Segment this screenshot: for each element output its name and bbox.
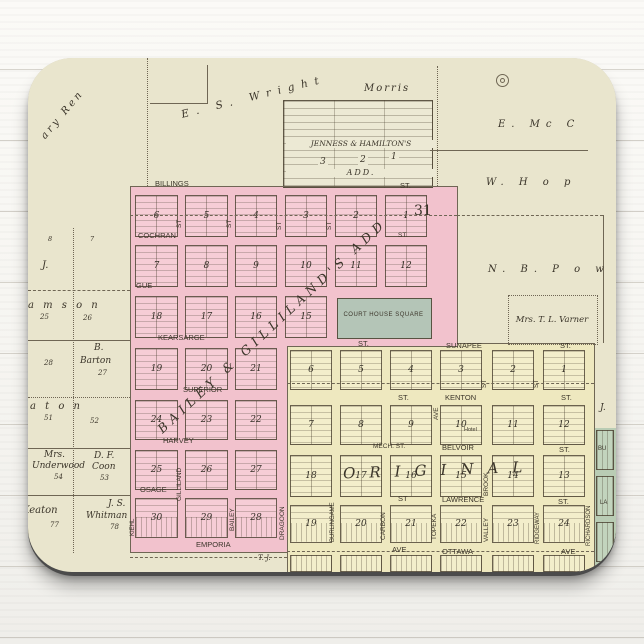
parcel-number: 52 bbox=[90, 418, 99, 425]
block-number: 12 bbox=[386, 246, 426, 286]
survey-line bbox=[28, 290, 130, 291]
block-number: 30 bbox=[136, 499, 177, 537]
plat-block-18: 18 bbox=[135, 296, 178, 338]
street-label-mech-st: MECH. ST. bbox=[373, 444, 405, 451]
owner-label-whitman: Whitman bbox=[86, 512, 127, 521]
plat-block bbox=[290, 555, 332, 572]
survey-line bbox=[457, 186, 458, 344]
owner-label-w-hop: W. H o p bbox=[486, 178, 576, 188]
survey-line bbox=[28, 495, 130, 496]
block-number: 24 bbox=[544, 506, 584, 542]
street-label-kenton: KENTON bbox=[445, 394, 476, 402]
block-number: 26 bbox=[186, 451, 227, 489]
plat-block-22: 22 bbox=[235, 400, 277, 440]
plat-block bbox=[440, 555, 482, 572]
street-label-st: ST bbox=[227, 220, 234, 228]
block-number: 21 bbox=[391, 506, 431, 542]
owner-label-underwood: Underwood bbox=[32, 462, 85, 471]
plat-block-10: 10 bbox=[440, 405, 482, 445]
street-label-carbon: CARBON bbox=[381, 512, 388, 540]
owner-label-coon: Coon bbox=[92, 463, 116, 472]
street-label-gilliland: GILLILAND bbox=[177, 468, 184, 501]
street-label-ave: AVE bbox=[434, 407, 441, 420]
owner-label-t-j: T. J. bbox=[258, 555, 271, 562]
plat-block-5: 5 bbox=[340, 350, 382, 390]
plat-block bbox=[390, 555, 432, 572]
block-number: 23 bbox=[493, 506, 533, 542]
parcel-number: 7 bbox=[90, 236, 94, 243]
plat-map: 6543217891011121817161519202124232225262… bbox=[28, 58, 616, 572]
parcel-number: 51 bbox=[44, 415, 53, 422]
plat-block bbox=[543, 555, 585, 572]
jenness-hamilton-add-label: ADD. bbox=[286, 169, 436, 177]
street-label-partial: BU bbox=[598, 446, 606, 452]
plat-block-23: 23 bbox=[492, 505, 534, 543]
block-number: 5 bbox=[186, 196, 227, 236]
survey-line bbox=[130, 215, 457, 216]
plat-block-20: 20 bbox=[340, 505, 382, 543]
owner-label-e-mc-c: E. Mc C bbox=[498, 120, 580, 130]
plat-block-24: 24 bbox=[543, 505, 585, 543]
block-number: 27 bbox=[236, 451, 276, 489]
parcel-number: 53 bbox=[100, 475, 109, 482]
survey-line bbox=[287, 383, 594, 384]
jenness-hamilton-addition-label: JENNESS & HAMILTON'S bbox=[286, 140, 436, 148]
owner-label-mrs-underwood: Mrs. bbox=[44, 451, 65, 460]
block-number: 18 bbox=[291, 456, 331, 496]
plat-block bbox=[492, 555, 534, 572]
plat-block-30: 30 bbox=[135, 498, 178, 538]
block-number: 22 bbox=[236, 401, 276, 439]
owner-label-keaton: Keaton bbox=[28, 506, 58, 516]
street-label-st: ST bbox=[534, 380, 541, 388]
plat-block-29: 29 bbox=[185, 498, 228, 538]
block-number: 8 bbox=[341, 406, 381, 444]
parcel-number: 28 bbox=[44, 360, 53, 367]
owner-label-j-s-whitman: J. S. bbox=[108, 500, 125, 509]
plat-block-8: 8 bbox=[340, 405, 382, 445]
survey-line bbox=[73, 228, 74, 553]
street-label-richardson: RICHARDSON bbox=[586, 506, 592, 546]
block-number: 7 bbox=[136, 246, 177, 286]
block-number: 19 bbox=[291, 506, 331, 542]
plat-block-18: 18 bbox=[290, 455, 332, 497]
owner-label-amson: a m s o n bbox=[28, 301, 101, 311]
owner-label-morris: Morris bbox=[364, 84, 410, 94]
plat-block-9: 9 bbox=[235, 245, 277, 287]
product-photo-scene: 6543217891011121817161519202124232225262… bbox=[0, 0, 644, 644]
street-label-billings: BILLINGS bbox=[155, 180, 189, 188]
block-number: 9 bbox=[236, 246, 276, 286]
owner-label-n-b-pow: N. B. P o w bbox=[488, 265, 610, 275]
section-number-31: 31 bbox=[414, 204, 432, 218]
parcel-number: 27 bbox=[98, 370, 107, 377]
survey-line bbox=[28, 340, 130, 341]
block-number: 13 bbox=[544, 456, 584, 496]
plat-block-19: 19 bbox=[290, 505, 332, 543]
plat-block-1: 1 bbox=[543, 350, 585, 390]
block-number: 20 bbox=[341, 506, 381, 542]
block-number: 17 bbox=[186, 297, 227, 337]
survey-line bbox=[430, 150, 588, 151]
plat-block-3: 3 bbox=[285, 195, 327, 237]
survey-line bbox=[603, 215, 604, 343]
parcel-number: 25 bbox=[40, 314, 49, 321]
block-number: 4 bbox=[236, 196, 276, 236]
block-number: 19 bbox=[136, 349, 177, 389]
plat-block-22: 22 bbox=[440, 505, 482, 543]
plat-block-9: 9 bbox=[390, 405, 432, 445]
plat-block-17: 17 bbox=[185, 296, 228, 338]
survey-line bbox=[287, 346, 458, 347]
block-number: 7 bbox=[291, 406, 331, 444]
plat-block-19: 19 bbox=[135, 348, 178, 390]
parcel-number: 8 bbox=[48, 236, 52, 243]
block-number: 12 bbox=[544, 406, 584, 444]
owner-label-b-barton: B. bbox=[94, 344, 103, 353]
owner-label-barton: Barton bbox=[80, 357, 111, 366]
street-label-st: ST. bbox=[558, 498, 569, 506]
survey-line bbox=[130, 186, 131, 553]
street-label-st: ST. bbox=[398, 394, 409, 402]
plat-block-7: 7 bbox=[290, 405, 332, 445]
street-label-topeka: TOPEKA bbox=[432, 514, 439, 540]
survey-line bbox=[130, 552, 287, 553]
survey-line bbox=[594, 343, 595, 428]
owner-label-j-right: J. bbox=[600, 404, 606, 413]
owner-label-d-f-coon: D. F. bbox=[94, 452, 114, 461]
street-label-st: ST bbox=[277, 222, 284, 230]
survey-line bbox=[594, 428, 595, 572]
plat-block bbox=[340, 555, 382, 572]
street-label-st: ST bbox=[177, 220, 184, 228]
survey-line bbox=[287, 346, 288, 572]
street-label-st: ST. bbox=[561, 394, 572, 402]
plat-block-21: 21 bbox=[390, 505, 432, 543]
owner-label-aton: a t o n bbox=[30, 402, 83, 412]
jenness-block-number: 3 bbox=[318, 158, 328, 167]
courthouse-square-label: COURT HOUSE SQUARE bbox=[337, 312, 430, 318]
street-label-bailey: BAILEY bbox=[230, 508, 237, 531]
street-label-gue: GUE bbox=[136, 282, 152, 290]
street-label-cochran: COCHRAN bbox=[138, 232, 176, 240]
street-label-st: ST. bbox=[560, 342, 571, 350]
street-label-burlingame: BURLINGAME bbox=[330, 502, 336, 542]
block-number: 10 bbox=[441, 406, 481, 444]
street-label-belvoir: BELVOIR bbox=[442, 444, 474, 452]
block-number: 8 bbox=[186, 246, 227, 286]
plat-block-12: 12 bbox=[385, 245, 427, 287]
plat-block-6: 6 bbox=[290, 350, 332, 390]
jenness-block-number: 2 bbox=[358, 156, 368, 165]
street-label-ottawa: OTTAWA bbox=[442, 548, 473, 556]
parcel-number: 78 bbox=[110, 524, 119, 531]
stamp-icon bbox=[496, 74, 509, 87]
block-number: 28 bbox=[236, 499, 276, 537]
plat-block-2: 2 bbox=[492, 350, 534, 390]
street-label-st: ST. bbox=[398, 233, 407, 240]
street-label-osage: OSAGE bbox=[140, 486, 167, 494]
plat-block-5: 5 bbox=[185, 195, 228, 237]
plat-block-4: 4 bbox=[390, 350, 432, 390]
block-number: 25 bbox=[136, 451, 177, 489]
street-label-st: ST bbox=[327, 222, 334, 230]
plat-block-26: 26 bbox=[185, 450, 228, 490]
street-label-st: ST bbox=[482, 380, 489, 388]
block-number: 29 bbox=[186, 499, 227, 537]
street-label-lawrence: LAWRENCE bbox=[442, 496, 484, 504]
plat-block-3: 3 bbox=[440, 350, 482, 390]
parcel-number: 26 bbox=[83, 315, 92, 322]
mousepad: 6543217891011121817161519202124232225262… bbox=[28, 58, 616, 572]
owner-label-j: J. bbox=[42, 261, 48, 271]
plat-block-8: 8 bbox=[185, 245, 228, 287]
street-label-harvey: HARVEY bbox=[163, 437, 194, 445]
jenness-block-number: 1 bbox=[389, 153, 399, 162]
survey-line bbox=[28, 397, 130, 398]
survey-line bbox=[207, 65, 208, 104]
parcel-number: 77 bbox=[50, 522, 59, 529]
plat-block-4: 4 bbox=[235, 195, 277, 237]
block-number: 11 bbox=[493, 406, 533, 444]
block-number: 3 bbox=[286, 196, 326, 236]
street-label-emporia: EMPORIA bbox=[196, 541, 231, 549]
street-label-st: ST bbox=[398, 495, 408, 503]
plat-block-13: 13 bbox=[543, 455, 585, 497]
street-label-partial: LA bbox=[600, 500, 607, 506]
block-number: 22 bbox=[441, 506, 481, 542]
plat-block-28: 28 bbox=[235, 498, 277, 538]
plat-block bbox=[596, 476, 614, 516]
street-label-kearsarge: KEARSARGE bbox=[158, 334, 205, 342]
street-label-ave: AVE bbox=[392, 546, 406, 554]
plat-block-11: 11 bbox=[492, 405, 534, 445]
block-number: 18 bbox=[136, 297, 177, 337]
block-number: 6 bbox=[136, 196, 177, 236]
plat-block-12: 12 bbox=[543, 405, 585, 445]
street-label-dragoon: DRAGOON bbox=[280, 506, 287, 540]
street-label-st: ST. bbox=[559, 446, 570, 454]
region-court-house-square bbox=[337, 298, 432, 339]
street-label-st: ST. bbox=[400, 182, 411, 190]
owner-label-mrs-t-l-varner: Mrs. T. L. Varner bbox=[508, 316, 596, 325]
street-label-st: ST. bbox=[358, 340, 369, 348]
street-label-sunapee: SUNAPEE bbox=[446, 342, 482, 350]
block-number: 9 bbox=[391, 406, 431, 444]
survey-line bbox=[147, 58, 148, 186]
plat-block bbox=[596, 522, 614, 562]
parcel-number: 54 bbox=[54, 474, 63, 481]
survey-line bbox=[287, 551, 594, 552]
survey-line bbox=[457, 215, 603, 216]
survey-line bbox=[437, 66, 438, 186]
plat-block-27: 27 bbox=[235, 450, 277, 490]
street-label-kiehl: KIEHL bbox=[130, 519, 136, 536]
street-label-valley: VALLEY bbox=[484, 518, 491, 542]
street-label-ridgeway: RIDGEWAY bbox=[535, 512, 541, 544]
street-label-ave: AVE bbox=[561, 548, 575, 556]
poi-label-hotel: Hotel bbox=[464, 428, 477, 434]
survey-line bbox=[28, 448, 130, 449]
